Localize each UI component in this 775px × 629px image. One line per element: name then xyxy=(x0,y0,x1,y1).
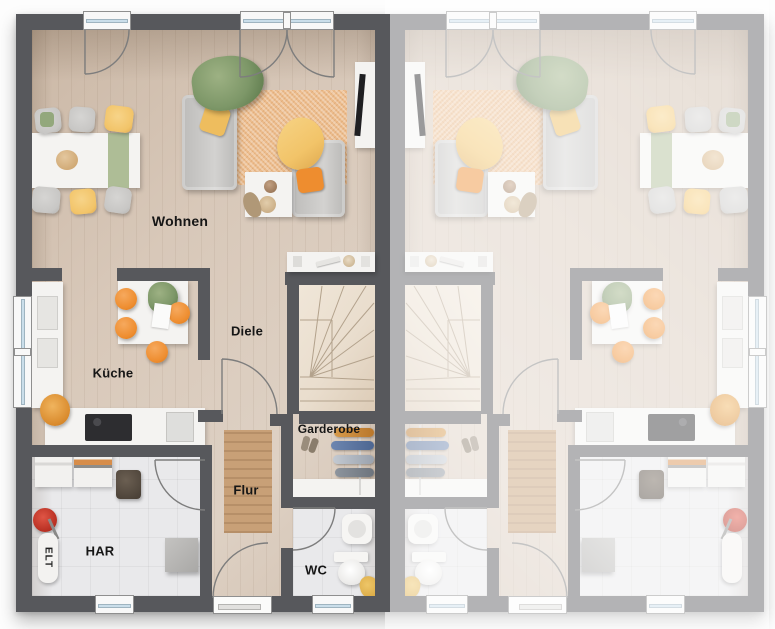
window-wc xyxy=(312,595,354,614)
elt-cabinet: ELT xyxy=(38,533,58,583)
wall-flur-left xyxy=(568,445,580,596)
orange-pillow xyxy=(295,166,324,193)
laundry-basket xyxy=(116,470,141,499)
wall-party xyxy=(390,14,405,612)
sideboard-books xyxy=(293,256,302,267)
door-leaf xyxy=(519,604,562,610)
kitchen-sink xyxy=(166,412,194,442)
island-notepad xyxy=(151,303,171,329)
washbasin-bowl xyxy=(348,520,366,538)
cabinet-front xyxy=(37,296,58,330)
shoe-bench xyxy=(293,479,375,497)
dining-chair xyxy=(683,188,711,215)
vase xyxy=(503,180,516,193)
unit-right xyxy=(390,0,764,629)
washbasin-bowl xyxy=(414,520,432,538)
washing-machine xyxy=(708,452,745,487)
wall-kitchen-top xyxy=(117,268,210,281)
chair-throw xyxy=(40,112,54,127)
room-label-diele: Diele xyxy=(231,324,263,339)
window-har xyxy=(95,595,134,614)
window-glass xyxy=(86,19,128,23)
island-notepad xyxy=(608,303,628,329)
hanging-coat xyxy=(333,455,374,464)
hallway-runner-rug xyxy=(224,430,272,533)
dining-chair xyxy=(68,106,96,133)
entrance-door xyxy=(213,596,272,614)
wall-kitchen-right xyxy=(570,268,582,360)
cabinet-front xyxy=(37,338,58,368)
window-glass xyxy=(649,604,682,608)
dining-chair xyxy=(69,188,97,215)
window-mullion xyxy=(14,348,31,356)
table-decor-bowl xyxy=(702,150,724,170)
hanging-coat xyxy=(335,468,374,477)
room-label-garderobe: Garderobe xyxy=(298,422,361,436)
window-har xyxy=(646,595,685,614)
dining-chair xyxy=(719,186,749,214)
window-glass xyxy=(98,604,131,608)
window-terrace-door xyxy=(83,11,131,30)
room-label-elt: ELT xyxy=(43,547,54,568)
staircase xyxy=(299,285,375,413)
wall-garderobe-left xyxy=(281,414,293,508)
window-glass xyxy=(429,604,465,608)
wall-party xyxy=(375,14,390,612)
bar-stool xyxy=(146,341,168,363)
cooktop-hob xyxy=(85,414,132,441)
window-mullion xyxy=(489,12,497,29)
hallway-runner-rug xyxy=(508,430,556,533)
bar-stool xyxy=(612,341,634,363)
sideboard-basket xyxy=(425,255,437,267)
orange-flower-basket xyxy=(40,394,70,426)
bar-stool xyxy=(115,288,137,310)
cooktop-hob xyxy=(648,414,695,441)
door-leaf xyxy=(218,604,261,610)
wall-sideboard xyxy=(285,272,375,285)
wall-flur-jamb xyxy=(198,410,223,422)
shoe-bench xyxy=(405,479,487,497)
bar-stool xyxy=(643,317,665,339)
cabinet-front xyxy=(722,338,743,368)
room-label-wc: WC xyxy=(305,563,327,578)
wall-flur-jamb xyxy=(557,410,582,422)
orange-flower-basket xyxy=(710,394,740,426)
wall-wc-left xyxy=(281,548,293,596)
window-mullion xyxy=(749,348,766,356)
floor-plan-canvas: ELT xyxy=(0,0,775,629)
hanging-coat xyxy=(406,441,449,450)
entrance-door xyxy=(508,596,567,614)
bar-stool xyxy=(643,288,665,310)
room-label-flur: Flur xyxy=(233,483,258,498)
hanging-coat xyxy=(331,441,374,450)
window-mullion xyxy=(283,12,291,29)
wall-flur-left xyxy=(200,445,212,596)
staircase xyxy=(405,285,481,413)
window-glass xyxy=(315,604,351,608)
storage-box xyxy=(165,538,198,572)
wall-stair-left xyxy=(287,285,299,414)
wall-garderobe-left xyxy=(487,414,499,508)
wall-sideboard xyxy=(405,272,495,285)
kitchen-sink xyxy=(586,412,614,442)
hanging-coat xyxy=(406,468,445,477)
washing-machine xyxy=(35,452,72,487)
wall-stair-bottom xyxy=(405,411,481,424)
room-label-kueche: Küche xyxy=(93,366,134,381)
dining-chair xyxy=(684,106,712,133)
dining-chair xyxy=(31,186,61,214)
sideboard-books xyxy=(478,256,487,267)
sideboard-box xyxy=(410,256,419,267)
sideboard-box xyxy=(361,256,370,267)
dining-chair xyxy=(646,104,677,133)
dining-chair xyxy=(103,185,132,214)
wall-har-top xyxy=(16,445,212,457)
chair-throw xyxy=(726,112,740,127)
laundry-basket xyxy=(639,470,664,499)
unit-left: ELT xyxy=(16,0,390,629)
dining-chair xyxy=(647,185,676,214)
room-label-har: HAR xyxy=(86,544,115,559)
sideboard-basket xyxy=(343,255,355,267)
cabinet-front xyxy=(722,296,743,330)
storage-box xyxy=(582,538,615,572)
orange-pillow xyxy=(455,166,484,193)
table-decor-bowl xyxy=(56,150,78,170)
dining-chair xyxy=(104,104,135,133)
wall-garderobe-wc xyxy=(405,497,487,509)
room-label-wohnen: Wohnen xyxy=(152,213,208,229)
wall-kitchen-right xyxy=(198,268,210,360)
bar-stool xyxy=(115,317,137,339)
wall-har-top xyxy=(568,445,764,457)
window-glass xyxy=(652,19,694,23)
elt-cabinet xyxy=(722,533,742,583)
table-runner xyxy=(651,133,672,188)
hanging-coat xyxy=(406,428,446,437)
wall-kitchen-stub xyxy=(16,268,62,281)
window-wc xyxy=(426,595,468,614)
wall-kitchen-top xyxy=(570,268,663,281)
window-terrace-door xyxy=(649,11,697,30)
wall-kitchen-stub xyxy=(718,268,764,281)
wall-garderobe-wc xyxy=(293,497,375,509)
vase xyxy=(264,180,277,193)
table-runner xyxy=(108,133,129,188)
wall-wc-left xyxy=(487,548,499,596)
hanging-coat xyxy=(406,455,447,464)
wall-stair-left xyxy=(481,285,493,414)
